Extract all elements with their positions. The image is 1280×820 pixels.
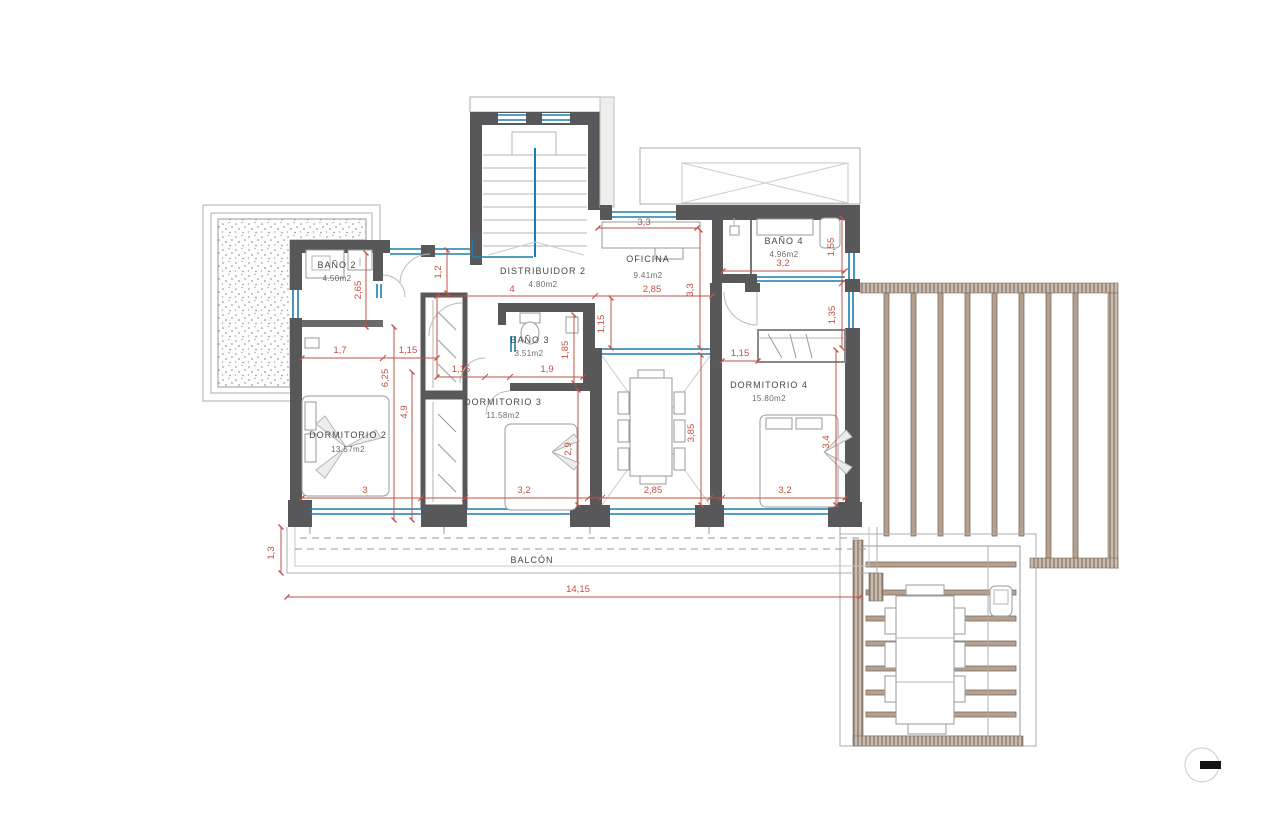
balcony-label: BALCÓN <box>510 555 553 565</box>
bed-dorm4-symbol <box>760 415 852 507</box>
room-area-dorm3: 11.58m2 <box>486 411 519 420</box>
room-area-distribuidor: 4.80m2 <box>528 280 557 289</box>
dim-dorm2-3: 3 <box>362 485 367 496</box>
dim-v-34: 3,4 <box>821 435 832 448</box>
dim-void-285: 2,85 <box>644 485 663 496</box>
room-area-oficina: 9.41m2 <box>633 271 662 280</box>
room-name-dorm4: DORMITORIO 4 <box>730 380 808 390</box>
staircase <box>470 97 614 265</box>
room-name-oficina: OFICINA <box>626 254 670 264</box>
room-name-bano4: BAÑO 4 <box>764 236 803 246</box>
dim-v-13: 1,3 <box>266 546 277 559</box>
floor-plan-page: BALCÓN 3,3 4 <box>0 0 1280 820</box>
dim-v-12: 1,2 <box>433 265 444 278</box>
dim-bano3-115: 1,15 <box>452 364 471 375</box>
floor-plan-svg: BALCÓN 3,3 4 <box>0 0 1280 820</box>
dim-v-115: 1,15 <box>596 315 607 334</box>
skylight-outline <box>640 148 860 204</box>
room-name-dorm2: DORMITORIO 2 <box>309 430 387 440</box>
dim-bano3-19: 1,9 <box>540 364 553 375</box>
dim-v-29: 2,9 <box>563 442 574 455</box>
room-area-dorm2: 13.57m2 <box>331 445 365 454</box>
dim-bano2-17: 1,7 <box>333 345 346 356</box>
dining-table-symbol <box>885 585 965 734</box>
room-name-distribuidor: DISTRIBUIDOR 2 <box>500 266 586 276</box>
pergola <box>860 283 1118 568</box>
north-marker-icon <box>1185 748 1221 782</box>
dim-hall-115: 1,15 <box>399 345 418 356</box>
dim-v-33: 3,3 <box>685 283 696 296</box>
grill-symbol <box>990 586 1012 616</box>
room-area-bano2: 4.50m2 <box>322 274 351 283</box>
dim-v-385: 3,85 <box>686 424 697 443</box>
room-area-dorm4: 15.80m2 <box>752 394 786 403</box>
dim-v-185: 1,85 <box>560 341 571 360</box>
dim-bano4-32: 3,2 <box>776 258 789 269</box>
room-area-bano4: 4.96m2 <box>769 250 798 259</box>
dim-dorm4-32: 3,2 <box>778 485 791 496</box>
dim-v-155: 1,55 <box>826 238 837 257</box>
dim-dorm3-32: 3,2 <box>517 485 530 496</box>
room-name-bano2: BAÑO 2 <box>317 260 356 270</box>
room-area-bano3: 3.51m2 <box>514 349 543 358</box>
dim-total-1415: 14,15 <box>566 584 590 595</box>
dim-v-49: 4,9 <box>399 405 410 418</box>
room-name-dorm3: DORMITORIO 3 <box>464 397 542 407</box>
dim-oficina-285: 2,85 <box>643 284 662 295</box>
bed-dorm3-symbol <box>505 424 579 510</box>
dim-v-265: 2,65 <box>353 281 364 300</box>
dim-dorm4-115: 1,15 <box>731 348 750 359</box>
dim-v-135: 1,35 <box>827 306 838 325</box>
dim-hall-4: 4 <box>509 284 514 295</box>
dim-top-33: 3,3 <box>637 217 650 228</box>
dim-v-625: 6,25 <box>380 369 391 388</box>
room-name-bano3: BAÑO 3 <box>510 335 549 345</box>
